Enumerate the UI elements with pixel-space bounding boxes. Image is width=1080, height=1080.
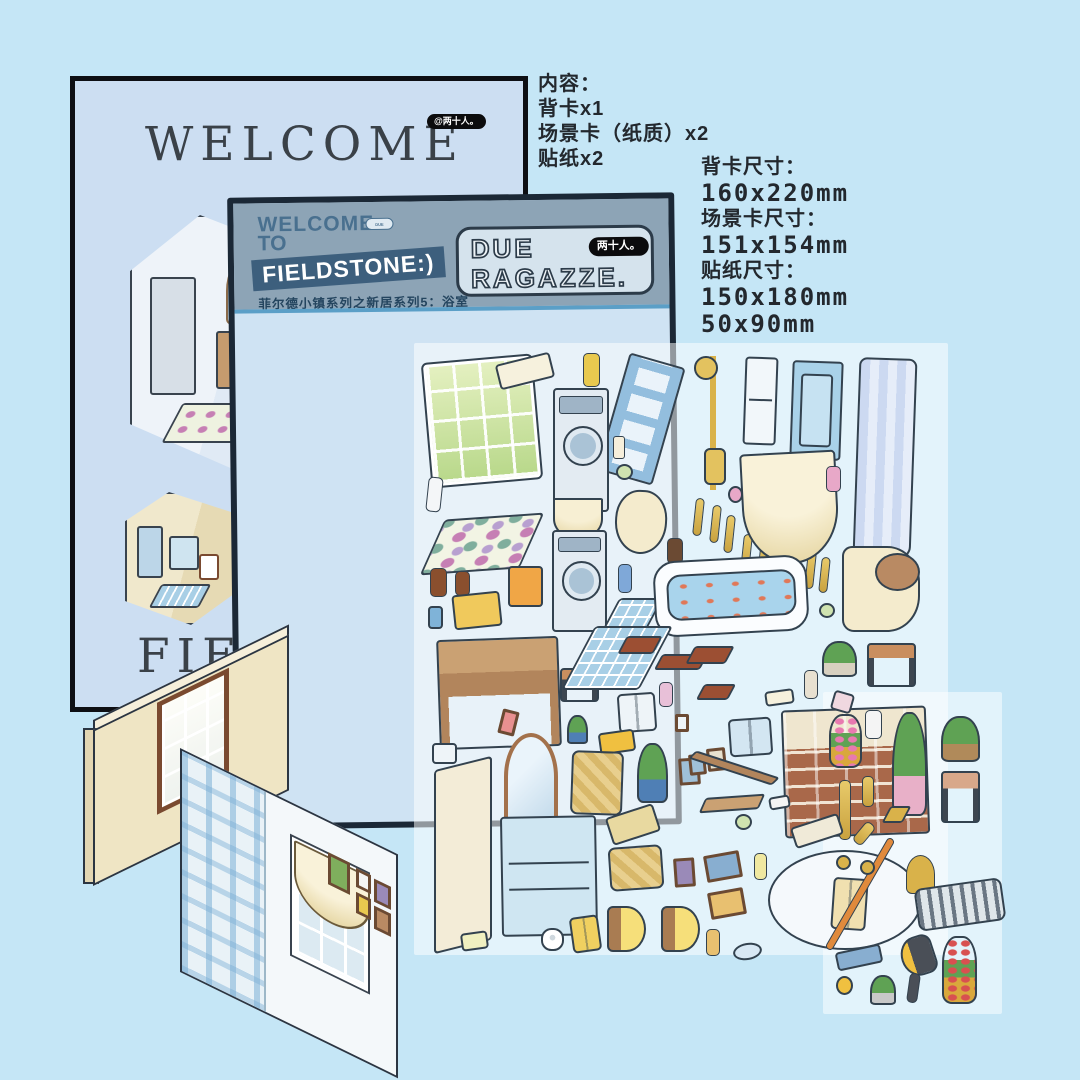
wall-sconce-1: [607, 906, 646, 952]
rose-vase: [942, 936, 977, 1004]
succulent: [567, 715, 588, 744]
mini-badge: DUE RAGAZZE: [365, 218, 393, 230]
hand-towel-blue: [728, 717, 774, 758]
amber-bottle-2: [455, 571, 470, 596]
wall-niche: [742, 356, 778, 445]
perfume-pink: [659, 682, 673, 707]
badge-line1: DUE: [471, 235, 535, 262]
picture-frame-icon: [374, 879, 391, 910]
size-label: 场景卡尺寸：: [701, 207, 849, 232]
size-value: 160x220mm: [701, 180, 849, 207]
candlestick-2: [862, 776, 874, 807]
monstera-basket: [941, 716, 980, 762]
slipper-basket: [608, 844, 665, 892]
size-value: 50x90mm: [701, 311, 849, 338]
soap-dish: [432, 743, 457, 764]
due-ragazze-badge: DUE RAGAZZE. 两十人。: [456, 225, 655, 297]
green-jar: [735, 814, 752, 830]
contents-line: 场景卡（纸质）x2: [538, 122, 709, 147]
window-icon: [199, 554, 219, 580]
potted-plant: [822, 641, 857, 677]
picture-frame-icon: [374, 906, 391, 937]
sizes-note: 背卡尺寸： 160x220mm 场景卡尺寸： 151x154mm 贴纸尺寸： 1…: [701, 155, 849, 338]
blue-bottle: [618, 564, 632, 593]
washing-machine-2: [552, 530, 607, 632]
washer-stack-icon: [150, 277, 196, 395]
shower-door-panel: [434, 756, 492, 954]
size-label: 背卡尺寸：: [701, 155, 849, 180]
hanging-plant: [892, 712, 927, 816]
baby-tub: [451, 591, 502, 631]
cabinet-icon: [137, 526, 163, 578]
bathtub: [652, 554, 810, 638]
yellow-towel: [569, 914, 603, 954]
duck-hook: [836, 976, 853, 995]
toilet: [842, 546, 920, 632]
tissue-pack: [460, 930, 489, 952]
shower-set: [694, 356, 732, 490]
contents-line: 背卡x1: [538, 97, 709, 122]
isometric-room-illustration-2: [125, 492, 235, 625]
pink-soap: [728, 486, 743, 503]
waste-bin: [508, 566, 543, 607]
badge-line2: RAGAZZE.: [471, 264, 628, 292]
brand-pill-badge: @两十人。: [427, 114, 486, 129]
candle-jar: [616, 464, 633, 480]
dark-stool: [867, 643, 916, 687]
brand-pill-badge: 两十人。: [589, 237, 649, 257]
to-text: TO: [258, 232, 287, 256]
lotion-tube: [754, 853, 767, 880]
bud-vase-pink: [826, 466, 841, 492]
lotion-bottle: [706, 929, 720, 956]
shower-cabin: [789, 360, 843, 461]
washing-machine-1: [553, 388, 609, 512]
back-card-title: WELCOME: [145, 117, 465, 172]
shelf-icon: [169, 536, 199, 570]
aroma-diffuser: [804, 670, 818, 699]
wall-face: [180, 748, 398, 1078]
toilet-paper: [541, 928, 564, 951]
towel-print: [617, 692, 658, 734]
aloe-plant: [637, 743, 668, 803]
size-value: 151x154mm: [701, 232, 849, 259]
size-label: 贴纸尺寸：: [701, 259, 849, 284]
white-vase: [865, 710, 882, 739]
basket-bag: [570, 750, 624, 816]
mini-plant: [870, 975, 896, 1005]
wall-outlet: [675, 714, 689, 732]
contents-note: 内容： 背卡x1 场景卡（纸质）x2 贴纸x2: [538, 72, 709, 172]
contents-title: 内容：: [538, 72, 709, 97]
gold-hook-2: [860, 860, 875, 875]
toothbrush-cup: [428, 606, 443, 629]
plaid-tiles: [182, 751, 266, 1012]
candle: [613, 436, 625, 459]
gold-hook-1: [836, 855, 851, 870]
size-value: 150x180mm: [701, 284, 849, 311]
tulip-vase: [829, 714, 862, 768]
soap-dispenser: [583, 353, 600, 387]
frame-purple: [673, 857, 696, 887]
product-promo-image: WELCOME @两十人。 FIELD 内容： 背卡x1 场景卡（纸质）x2 贴…: [0, 0, 1080, 1080]
round-stool: [941, 771, 980, 823]
shower-curtain: [853, 357, 918, 559]
main-card-header: WELCOME DUE RAGAZZE TO FIELDSTONE:) 菲尔德小…: [233, 198, 669, 309]
contents-line: 贴纸x2: [538, 147, 709, 172]
wall-sconce-2: [661, 906, 700, 952]
green-soap: [819, 603, 835, 618]
amber-bottle-1: [430, 568, 447, 597]
